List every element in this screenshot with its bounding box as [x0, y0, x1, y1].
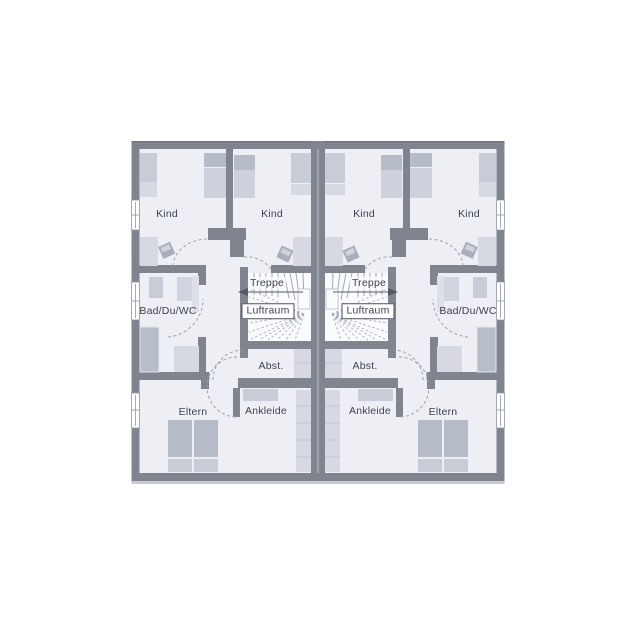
room-label-kind-right-inner: Kind — [353, 209, 375, 220]
room-label-stairs-left: Treppe — [248, 277, 286, 290]
room-label-stairs-right: Treppe — [350, 277, 388, 290]
room-label-storage-left: Abst. — [259, 361, 284, 372]
floor-plan-canvas: Kind Kind Bad/Du/WC Treppe Luftraum Abst… — [0, 0, 636, 636]
room-label-dressing-left: Ankleide — [245, 406, 287, 417]
room-label-kind-left-inner: Kind — [261, 209, 283, 220]
room-label-bath-right: Bad/Du/WC — [439, 306, 496, 317]
room-label-parents-right: Eltern — [429, 407, 458, 418]
room-label-dressing-right: Ankleide — [349, 406, 391, 417]
room-label-kind-left-outer: Kind — [156, 209, 178, 220]
room-label-storage-right: Abst. — [353, 361, 378, 372]
room-label-kind-right-outer: Kind — [458, 209, 480, 220]
room-label-airspace-right: Luftraum — [341, 303, 394, 319]
floor-plan-drawing — [0, 0, 636, 636]
room-label-airspace-left: Luftraum — [241, 303, 294, 319]
room-label-bath-left: Bad/Du/WC — [139, 306, 196, 317]
room-label-parents-left: Eltern — [179, 407, 208, 418]
